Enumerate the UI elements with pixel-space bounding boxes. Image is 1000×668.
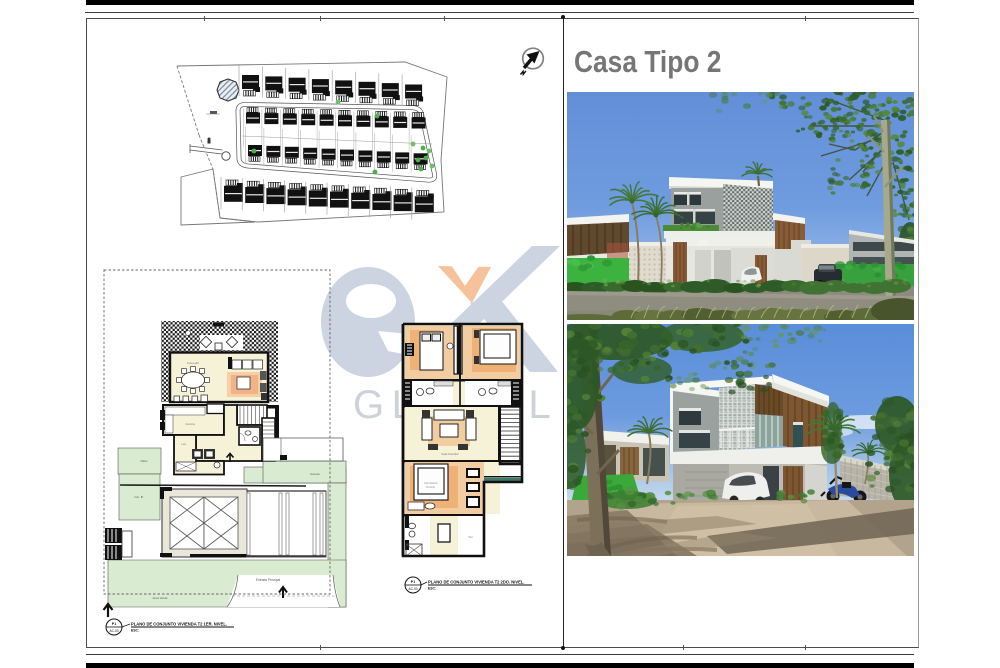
svg-text:P1: P1 (411, 580, 415, 584)
svg-text:Comedor: Comedor (187, 361, 199, 365)
svg-text:Entrada Principal: Entrada Principal (256, 578, 281, 582)
svg-text:Cocina: Cocina (185, 422, 195, 426)
svg-text:PLANO DE CONJUNTO VIVIENDA T2: PLANO DE CONJUNTO VIVIENDA T2 1ER. NIVEL… (131, 622, 227, 627)
svg-text:Princip.: Princip. (426, 485, 436, 489)
svg-text:Acceso: Acceso (310, 472, 320, 476)
svg-text:ESC:: ESC: (428, 587, 436, 591)
svg-text:PLANO DE CONJUNTO VIVIENDA T2: PLANO DE CONJUNTO VIVIENDA T2 2DO. NIVEL… (428, 580, 524, 585)
svg-text:ESC:: ESC: (131, 629, 139, 633)
svg-text:P1: P1 (112, 622, 116, 626)
svg-text:Lav.: Lav. (181, 442, 186, 446)
svg-text:Area Verde: Area Verde (152, 596, 167, 600)
svg-text:Patio: Patio (141, 459, 148, 463)
svg-text:Sala Familiar: Sala Familiar (441, 452, 459, 456)
svg-text:AC-00: AC-00 (109, 629, 118, 633)
svg-text:AC-00: AC-00 (408, 587, 417, 591)
svg-text:Cto. B.: Cto. B. (134, 495, 143, 499)
svg-text:Terr.: Terr. (468, 535, 474, 539)
